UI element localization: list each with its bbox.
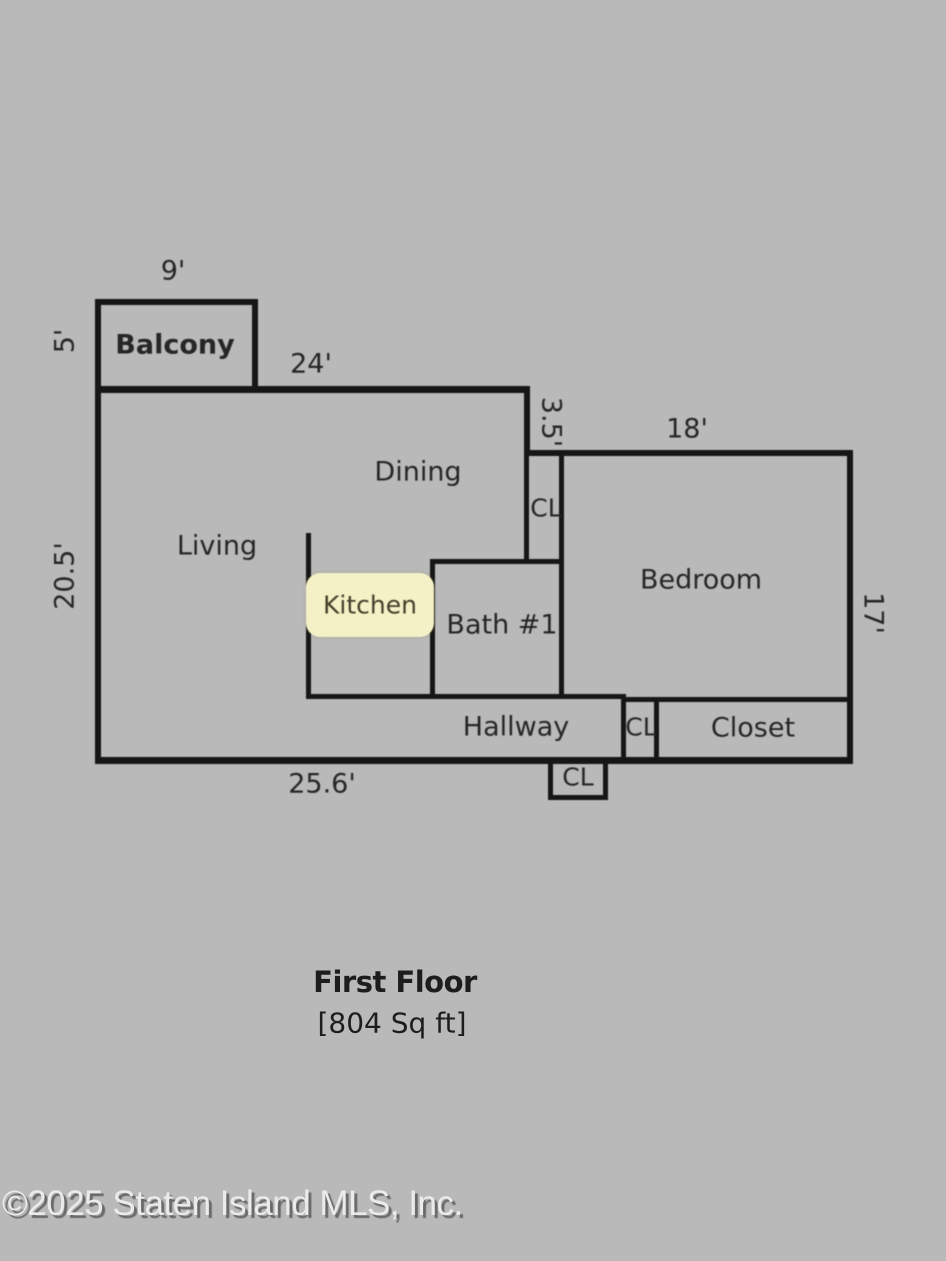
room-label-dining: Dining <box>374 459 461 486</box>
copyright-watermark: ©2025 Staten Island MLS, Inc. <box>2 1184 463 1224</box>
wall-closet-top <box>621 697 853 702</box>
wall-closet-entry-right <box>603 760 608 800</box>
dimension-left-side-depth: 20.5' <box>52 542 79 610</box>
floor-area: [804 Sq ft] <box>318 1007 467 1040</box>
wall-closet-entry-bottom <box>548 795 608 800</box>
wall-main-right <box>847 450 853 764</box>
room-label-closet-entry: CL <box>562 765 593 790</box>
floor-plan: 9' 5' 24' 3.5' 18' 20.5' 17' 25.6' Balco… <box>0 0 946 1261</box>
wall-closet-upper-left <box>524 450 529 564</box>
room-label-bath-1: Bath #1 <box>446 612 557 639</box>
dimension-balcony-depth: 5' <box>52 329 79 354</box>
wall-bath-top <box>430 559 564 564</box>
kitchen-highlight: Kitchen <box>306 573 434 637</box>
wall-step <box>524 386 530 456</box>
wall-closet-entry-left <box>548 760 553 800</box>
wall-main-left <box>95 386 101 764</box>
room-label-hallway: Hallway <box>463 714 569 741</box>
room-label-closet: Closet <box>711 715 795 742</box>
floor-plan-image: 9' 5' 24' 3.5' 18' 20.5' 17' 25.6' Balco… <box>0 0 946 1261</box>
wall-main-top <box>95 386 530 393</box>
wall-bedroom-left <box>559 450 564 699</box>
wall-balcony-left <box>95 299 101 391</box>
wall-bedroom-top <box>524 450 853 456</box>
room-label-closet-hall: CL <box>625 715 656 740</box>
wall-hallway-top <box>306 694 626 699</box>
dimension-bedroom-width: 18' <box>666 416 708 443</box>
room-label-balcony: Balcony <box>115 332 234 359</box>
floor-title: First Floor <box>313 965 477 999</box>
room-label-living: Living <box>177 533 257 560</box>
dimension-bottom-width: 25.6' <box>288 771 356 798</box>
dimension-bedroom-depth: 17' <box>860 592 887 634</box>
room-label-closet-upper: CL <box>530 496 561 521</box>
wall-balcony-right <box>252 299 258 391</box>
wall-balcony-top <box>95 299 258 305</box>
room-label-kitchen: Kitchen <box>323 593 417 618</box>
dimension-step-depth: 3.5' <box>538 397 565 447</box>
room-label-bedroom: Bedroom <box>640 567 762 594</box>
dimension-balcony-width: 9' <box>161 258 186 285</box>
wall-main-bottom <box>95 757 853 764</box>
dimension-main-top-width: 24' <box>290 351 332 378</box>
